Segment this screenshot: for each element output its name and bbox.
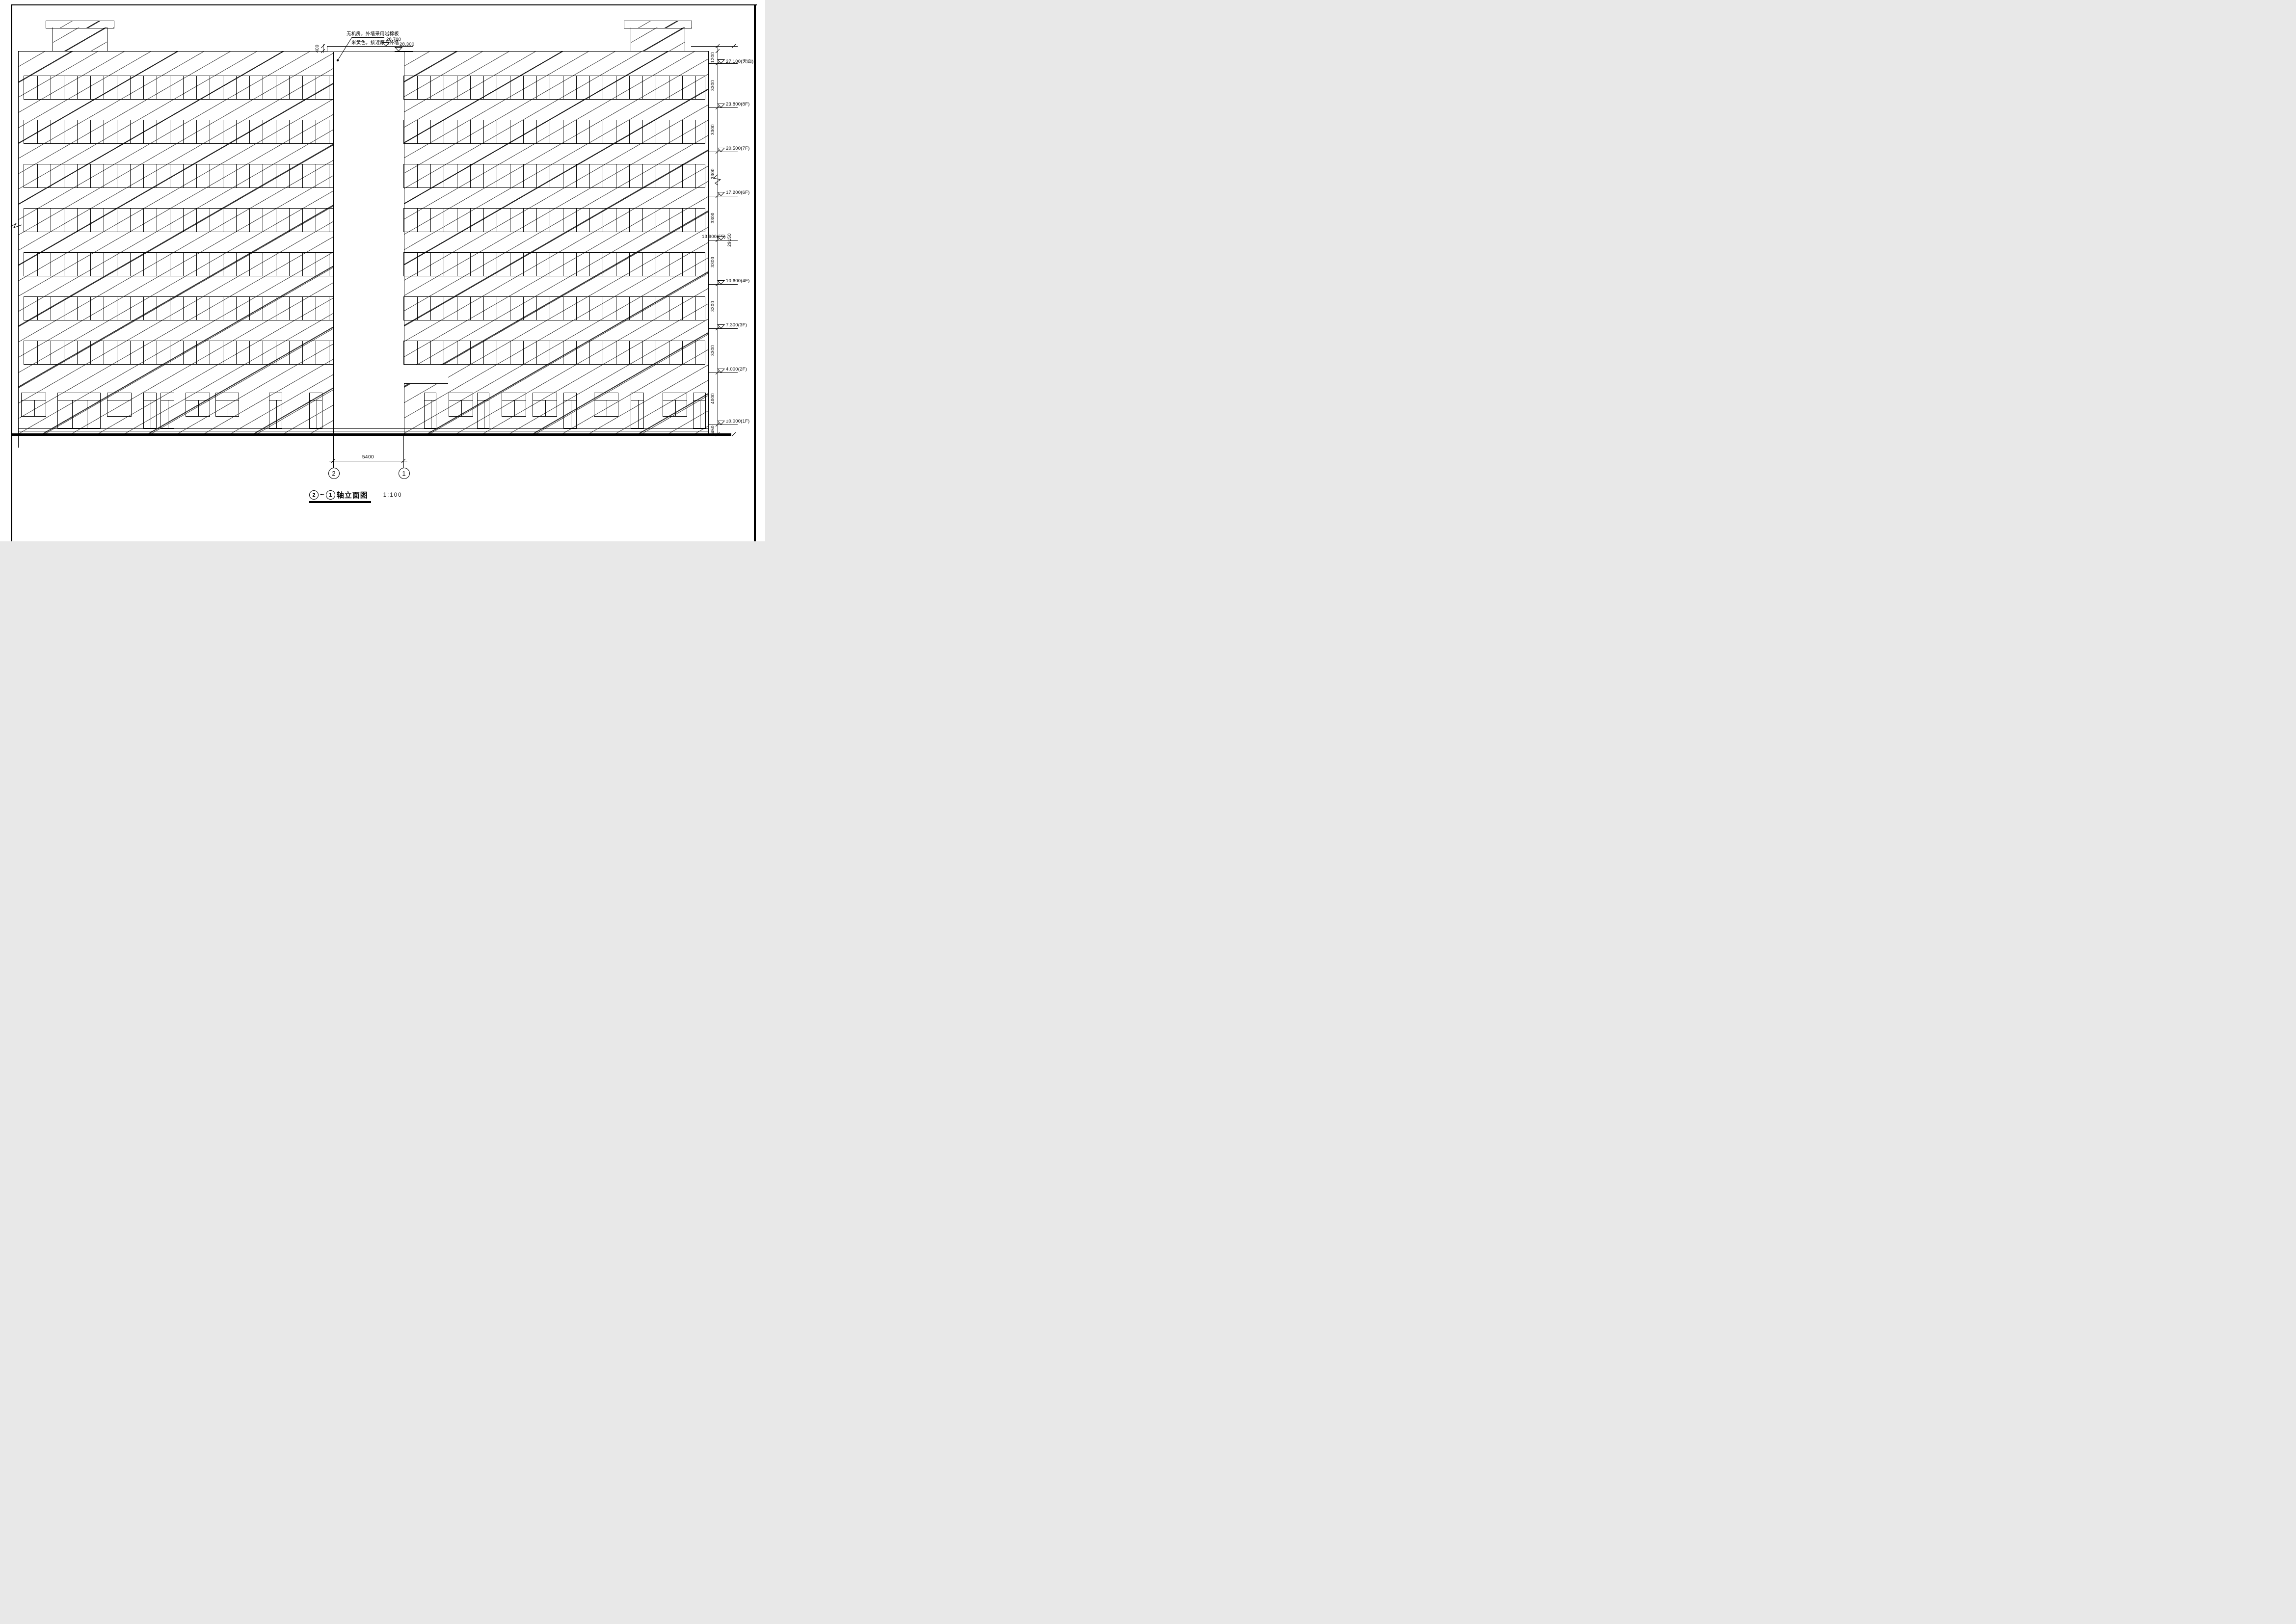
storefront-mullion <box>700 400 700 428</box>
window-mullion <box>77 297 78 320</box>
window-mullion <box>483 120 484 143</box>
window-mullion <box>444 120 444 143</box>
window-mullion <box>457 297 457 320</box>
window-mullion <box>497 76 497 99</box>
window-mullion <box>576 76 577 99</box>
window-mullion <box>523 120 524 143</box>
window-mullion <box>117 253 117 276</box>
storefront-mullion <box>198 400 199 416</box>
window-mullion <box>563 76 563 99</box>
window-mullion <box>196 341 197 364</box>
window-mullion <box>316 76 316 99</box>
window-mullion <box>483 209 484 232</box>
window-mullion <box>629 164 630 187</box>
storefront-transom <box>216 400 239 400</box>
dim-text-floor: 3300 <box>710 213 715 223</box>
storefront-mullion <box>607 400 607 416</box>
window-mullion <box>497 164 497 187</box>
storefront-transom <box>269 400 282 400</box>
dim-text-overall: 29150 <box>727 233 732 247</box>
window-mullion <box>316 341 316 364</box>
level-label: ±0.000(1F) <box>726 419 749 424</box>
window-mullion <box>223 209 223 232</box>
window-mullion <box>589 164 590 187</box>
window-mullion <box>642 209 643 232</box>
window-mullion <box>289 297 290 320</box>
axis-bubble-2-label: 2 <box>332 470 335 477</box>
window-mullion <box>550 297 550 320</box>
window-mullion <box>236 297 237 320</box>
window-mullion <box>550 209 550 232</box>
window-mullion <box>51 120 51 143</box>
storefront-transom <box>161 400 174 400</box>
window-mullion <box>695 209 696 232</box>
window-mullion <box>695 164 696 187</box>
window-mullion <box>276 164 276 187</box>
level-extension-top <box>691 46 738 47</box>
window-mullion <box>263 253 263 276</box>
window-mullion <box>223 341 223 364</box>
window-mullion <box>64 253 64 276</box>
storefront-transom <box>144 400 156 400</box>
window-mullion <box>37 209 38 232</box>
window-mullion <box>510 297 510 320</box>
window-mullion <box>457 164 457 187</box>
window-mullion <box>510 76 510 99</box>
window-mullion <box>170 341 170 364</box>
drawing-title: 2 ~ 1 轴立面图 1:100 <box>309 490 402 500</box>
window-mullion <box>629 209 630 232</box>
window-mullion <box>249 76 250 99</box>
storefront-mullion <box>34 400 35 416</box>
window-mullion <box>603 120 603 143</box>
window-band <box>403 76 705 100</box>
window-mullion <box>170 164 170 187</box>
storefront-mullion <box>228 400 228 416</box>
window-mullion <box>210 209 210 232</box>
window-mullion <box>64 76 64 99</box>
level-label: 17.200(6F) <box>726 190 749 195</box>
window-mullion <box>316 164 316 187</box>
window-mullion <box>143 76 144 99</box>
storefront-unit <box>107 393 132 417</box>
window-mullion <box>51 164 51 187</box>
level-label: 7.300(3F) <box>726 322 747 328</box>
window-mullion <box>444 164 444 187</box>
window-mullion <box>536 253 537 276</box>
window-mullion <box>130 341 131 364</box>
window-mullion <box>629 341 630 364</box>
dim-text-floor: 3300 <box>710 168 715 179</box>
window-mullion <box>656 209 656 232</box>
window-mullion <box>523 164 524 187</box>
window-mullion <box>302 76 303 99</box>
dim-text-floor: 1200 <box>710 52 715 62</box>
window-mullion <box>563 253 563 276</box>
storefront-mullion <box>484 400 484 428</box>
window-mullion <box>329 120 329 143</box>
window-mullion <box>589 297 590 320</box>
window-mullion <box>695 341 696 364</box>
window-mullion <box>263 164 263 187</box>
window-mullion <box>669 76 669 99</box>
window-mullion <box>183 120 184 143</box>
window-mullion <box>417 120 418 143</box>
axis-line-2 <box>333 435 334 468</box>
window-mullion <box>470 341 471 364</box>
span-dim-text: 5400 <box>362 454 374 460</box>
window-mullion <box>276 120 276 143</box>
window-mullion <box>510 341 510 364</box>
window-mullion <box>183 341 184 364</box>
window-mullion <box>104 253 104 276</box>
window-mullion <box>223 297 223 320</box>
window-mullion <box>656 164 656 187</box>
window-mullion <box>51 297 51 320</box>
window-mullion <box>210 253 210 276</box>
window-mullion <box>457 76 457 99</box>
window-mullion <box>470 120 471 143</box>
window-mullion <box>523 297 524 320</box>
window-mullion <box>616 164 616 187</box>
window-mullion <box>276 253 276 276</box>
window-mullion <box>64 341 64 364</box>
window-mullion <box>497 341 497 364</box>
title-text: 轴立面图 <box>337 490 368 500</box>
window-mullion <box>210 120 210 143</box>
window-mullion <box>576 120 577 143</box>
window-mullion <box>130 76 131 99</box>
window-mullion <box>656 120 656 143</box>
window-mullion <box>550 164 550 187</box>
window-mullion <box>77 120 78 143</box>
window-mullion <box>64 209 64 232</box>
window-mullion <box>236 76 237 99</box>
storefront-transom <box>425 400 436 400</box>
window-mullion <box>104 120 104 143</box>
window-mullion <box>104 164 104 187</box>
window-mullion <box>563 164 563 187</box>
window-mullion <box>117 76 117 99</box>
window-mullion <box>669 341 669 364</box>
window-mullion <box>444 209 444 232</box>
window-mullion <box>90 76 91 99</box>
dim-text-floor: 4000 <box>710 393 715 404</box>
window-mullion <box>37 253 38 276</box>
window-mullion <box>510 120 510 143</box>
window-mullion <box>263 297 263 320</box>
window-mullion <box>183 253 184 276</box>
window-band <box>24 120 333 144</box>
window-mullion <box>589 253 590 276</box>
window-mullion <box>642 297 643 320</box>
storefront-mullion <box>168 400 168 428</box>
window-mullion <box>576 253 577 276</box>
window-mullion <box>51 76 51 99</box>
window-mullion <box>695 76 696 99</box>
storefront-unit <box>215 393 239 417</box>
level-label: 13.900(5F) <box>702 234 725 240</box>
storefront-unit <box>631 393 644 428</box>
window-mullion <box>550 76 550 99</box>
window-mullion <box>316 209 316 232</box>
window-mullion <box>90 164 91 187</box>
storefront-transom <box>186 400 210 400</box>
window-band <box>403 296 705 320</box>
storefront-mullion <box>317 400 317 428</box>
window-mullion <box>470 253 471 276</box>
window-mullion <box>104 209 104 232</box>
window-mullion <box>430 341 431 364</box>
storefront-mullion <box>545 400 546 416</box>
window-mullion <box>417 209 418 232</box>
window-mullion <box>236 253 237 276</box>
window-mullion <box>656 76 656 99</box>
window-mullion <box>276 209 276 232</box>
window-mullion <box>444 341 444 364</box>
window-mullion <box>263 209 263 232</box>
window-mullion <box>236 341 237 364</box>
storefront-unit <box>21 393 46 417</box>
window-mullion <box>457 209 457 232</box>
axis-bubble-1: 1 <box>399 468 410 479</box>
window-mullion <box>249 164 250 187</box>
window-mullion <box>563 209 563 232</box>
window-mullion <box>302 297 303 320</box>
window-mullion <box>589 341 590 364</box>
window-mullion <box>117 297 117 320</box>
window-band <box>24 164 333 188</box>
storefront-mullion <box>276 400 277 428</box>
window-mullion <box>603 164 603 187</box>
window-mullion <box>329 341 329 364</box>
window-band <box>403 164 705 188</box>
window-mullion <box>210 297 210 320</box>
window-mullion <box>249 209 250 232</box>
window-mullion <box>457 120 457 143</box>
window-mullion <box>289 209 290 232</box>
axis-bubble-1-label: 1 <box>402 470 405 477</box>
storefront-unit <box>449 393 473 417</box>
window-mullion <box>417 253 418 276</box>
window-mullion <box>497 120 497 143</box>
window-mullion <box>550 341 550 364</box>
window-mullion <box>523 341 524 364</box>
window-mullion <box>157 120 157 143</box>
level-label: 27.100(天面) <box>726 57 753 64</box>
window-mullion <box>470 76 471 99</box>
window-mullion <box>289 341 290 364</box>
storefront-unit <box>269 393 282 428</box>
dim-text-floor: 3300 <box>710 124 715 135</box>
window-mullion <box>210 341 210 364</box>
window-mullion <box>223 76 223 99</box>
window-mullion <box>276 297 276 320</box>
window-mullion <box>236 120 237 143</box>
storefront-transom <box>107 400 131 400</box>
window-mullion <box>223 120 223 143</box>
title-axis-from-bubble: 2 <box>309 490 319 500</box>
window-mullion <box>656 297 656 320</box>
window-mullion <box>430 164 431 187</box>
storefront-transom <box>310 400 322 400</box>
window-mullion <box>417 76 418 99</box>
window-mullion <box>616 253 616 276</box>
window-mullion <box>210 164 210 187</box>
annotation-leader-shelf <box>352 37 384 38</box>
window-mullion <box>682 164 683 187</box>
storefront-transom <box>631 400 643 400</box>
window-mullion <box>523 253 524 276</box>
storefront-mullion <box>675 400 676 416</box>
storefront-unit <box>533 393 557 417</box>
level-extension-line <box>708 328 738 329</box>
window-mullion <box>682 76 683 99</box>
window-mullion <box>430 209 431 232</box>
storefront-unit <box>309 393 322 428</box>
window-mullion <box>77 164 78 187</box>
window-mullion <box>629 120 630 143</box>
window-mullion <box>430 297 431 320</box>
level-extension-line <box>708 107 738 108</box>
window-mullion <box>157 297 157 320</box>
window-mullion <box>143 297 144 320</box>
window-mullion <box>316 120 316 143</box>
storefront-mullion <box>431 400 431 428</box>
window-mullion <box>276 76 276 99</box>
window-mullion <box>210 76 210 99</box>
window-mullion <box>470 164 471 187</box>
window-mullion <box>329 253 329 276</box>
window-mullion <box>642 164 643 187</box>
window-mullion <box>563 297 563 320</box>
window-mullion <box>329 76 329 99</box>
storefront-unit <box>594 393 618 417</box>
window-mullion <box>316 253 316 276</box>
window-mullion <box>170 76 170 99</box>
axis-bubble-2: 2 <box>328 468 340 479</box>
window-mullion <box>236 209 237 232</box>
window-mullion <box>170 253 170 276</box>
level-extension-line <box>708 196 738 196</box>
title-axis-to-bubble: 1 <box>326 490 335 500</box>
window-mullion <box>236 164 237 187</box>
window-mullion <box>656 253 656 276</box>
window-band <box>403 208 705 232</box>
storefront-transom <box>502 400 526 400</box>
window-mullion <box>90 253 91 276</box>
window-mullion <box>682 297 683 320</box>
window-mullion <box>616 341 616 364</box>
parapet-dim-line <box>323 44 323 53</box>
window-mullion <box>536 76 537 99</box>
level-text-28700: 28.700 <box>386 37 401 42</box>
window-mullion <box>143 209 144 232</box>
dim-text-floor: 3300 <box>710 80 715 91</box>
annotation-line1: 无机房，外墙采用岩棉板 <box>347 30 399 37</box>
window-mullion <box>183 164 184 187</box>
storefront-unit <box>477 393 489 428</box>
window-mullion <box>51 253 51 276</box>
window-mullion <box>183 297 184 320</box>
window-mullion <box>682 253 683 276</box>
window-band <box>24 296 333 320</box>
window-mullion <box>104 76 104 99</box>
window-mullion <box>183 209 184 232</box>
window-band <box>24 341 333 365</box>
window-mullion <box>263 76 263 99</box>
window-mullion <box>417 341 418 364</box>
window-mullion <box>536 164 537 187</box>
window-mullion <box>510 209 510 232</box>
storefront-mullion <box>120 400 120 416</box>
window-mullion <box>695 120 696 143</box>
parapet-dim-text: 400 <box>315 45 320 53</box>
storefront-transom <box>564 400 576 400</box>
window-mullion <box>302 120 303 143</box>
dim-line-overall <box>734 46 734 435</box>
span-dim-line <box>329 461 407 461</box>
window-band <box>403 120 705 144</box>
window-mullion <box>642 341 643 364</box>
window-mullion <box>603 297 603 320</box>
window-mullion <box>289 164 290 187</box>
window-band <box>24 208 333 232</box>
window-mullion <box>223 253 223 276</box>
window-mullion <box>157 209 157 232</box>
window-mullion <box>196 209 197 232</box>
window-mullion <box>249 120 250 143</box>
window-mullion <box>483 164 484 187</box>
window-mullion <box>682 209 683 232</box>
window-mullion <box>157 76 157 99</box>
window-mullion <box>37 297 38 320</box>
window-mullion <box>170 297 170 320</box>
window-mullion <box>37 120 38 143</box>
dim-text-floor: 3300 <box>710 345 715 356</box>
window-mullion <box>669 253 669 276</box>
storefront-mullion <box>87 400 87 428</box>
window-mullion <box>302 253 303 276</box>
window-mullion <box>629 297 630 320</box>
window-mullion <box>117 120 117 143</box>
window-mullion <box>37 164 38 187</box>
storefront-mullion <box>72 400 73 428</box>
window-mullion <box>157 164 157 187</box>
window-band <box>403 252 705 276</box>
storefront-transom <box>694 400 705 400</box>
window-mullion <box>563 341 563 364</box>
storefront-transom <box>663 400 687 400</box>
window-mullion <box>130 297 131 320</box>
window-mullion <box>77 76 78 99</box>
window-mullion <box>130 164 131 187</box>
window-mullion <box>37 76 38 99</box>
window-mullion <box>196 164 197 187</box>
window-mullion <box>603 341 603 364</box>
window-mullion <box>536 341 537 364</box>
window-mullion <box>510 164 510 187</box>
window-mullion <box>603 253 603 276</box>
window-mullion <box>316 297 316 320</box>
storefront-unit <box>693 393 706 428</box>
window-mullion <box>302 209 303 232</box>
window-band <box>24 252 333 276</box>
level-label: 4.000(2F) <box>726 367 747 372</box>
window-mullion <box>550 120 550 143</box>
window-mullion <box>550 253 550 276</box>
window-mullion <box>576 209 577 232</box>
